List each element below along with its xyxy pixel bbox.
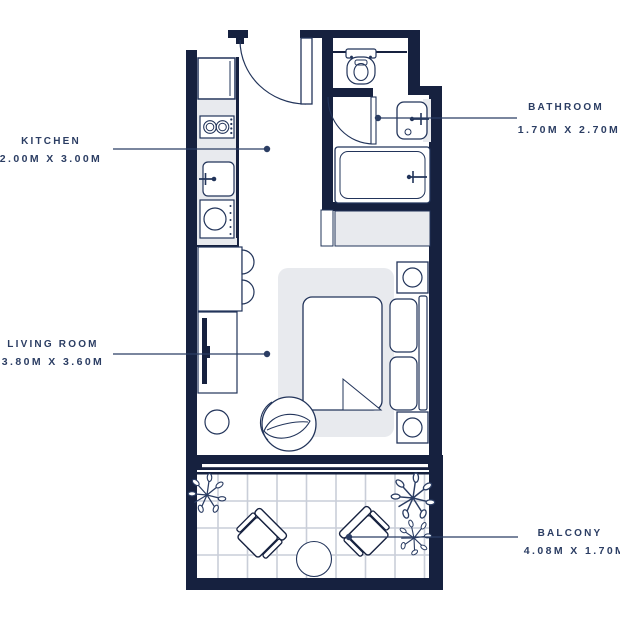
bathroom-left-wall: [322, 38, 333, 210]
plant: [391, 473, 435, 519]
balcony-zone: [188, 473, 437, 576]
bathtub: [335, 147, 430, 203]
balcony-leader-dot: [346, 534, 352, 540]
floor-plan-page: KITCHEN 2.00M X 3.00M BATHROOM 1.70M X 2…: [0, 0, 620, 620]
breakfast-counter: [198, 247, 242, 311]
sink-faucet-tip: [212, 177, 217, 182]
balcony-label: BALCONY: [538, 528, 603, 539]
stove: [200, 116, 234, 138]
living-room-label: LIVING ROOM: [7, 339, 98, 350]
balcony-glass-line: [186, 472, 443, 475]
balcony-chair-left: [233, 507, 289, 563]
lamp: [403, 268, 422, 287]
entry-door-leaf: [301, 38, 312, 104]
bathroom-leader-dot: [375, 115, 381, 121]
washbasin: [397, 102, 429, 139]
wardrobe: [335, 211, 430, 246]
bathroom-mid-wall: [333, 88, 373, 97]
bathroom-right-wall-upper: [408, 30, 420, 88]
entry-door: [240, 38, 312, 104]
balcony-chair-right: [338, 505, 394, 561]
stool: [205, 410, 229, 434]
entry-door-swing-arc: [240, 40, 306, 104]
armchair: [260, 397, 316, 451]
pillow: [390, 357, 417, 410]
pillow: [390, 299, 417, 352]
living-room-dims: 3.80M X 3.60M: [2, 356, 104, 368]
kitchen-zone: [197, 57, 239, 245]
kitchen-dims: 2.00M X 3.00M: [0, 153, 102, 165]
balcony-dims: 4.08M X 1.70M: [524, 545, 620, 557]
balcony-bottom-wall: [186, 578, 443, 590]
counter-chair: [242, 250, 254, 274]
kitchen-leader-dot: [264, 146, 270, 152]
sliding-door-slit: [202, 464, 428, 467]
bathroom-label: BATHROOM: [528, 102, 604, 113]
kitchen-sink: [199, 162, 234, 196]
lamp: [403, 418, 422, 437]
top-wall: [300, 30, 408, 38]
window-wall: [186, 455, 443, 470]
bathroom-dims: 1.70M X 2.70M: [518, 124, 620, 136]
left-wall: [186, 50, 197, 590]
toilet-seat-hinge: [355, 60, 367, 65]
tv-stand: [207, 346, 210, 358]
tv: [202, 318, 207, 384]
bathroom-door: [328, 97, 376, 144]
bathroom-door-leaf: [371, 97, 376, 144]
headboard: [419, 296, 427, 410]
kitchen-counter-edge: [236, 57, 239, 238]
kitchen-label: KITCHEN: [21, 136, 81, 147]
tub-faucet-tip: [407, 175, 411, 179]
living-room-leader-dot: [264, 351, 270, 357]
washing-machine: [200, 200, 234, 238]
floor-plan: KITCHEN 2.00M X 3.00M BATHROOM 1.70M X 2…: [0, 0, 620, 620]
bathroom-door-swing-arc: [328, 97, 374, 144]
fridge: [198, 58, 235, 99]
balcony-right-wall: [429, 457, 443, 590]
wardrobe-side-panel: [321, 210, 333, 246]
toilet: [346, 49, 376, 84]
entry-door-post: [228, 30, 248, 38]
balcony-table: [297, 542, 332, 577]
counter-chair: [242, 280, 254, 304]
